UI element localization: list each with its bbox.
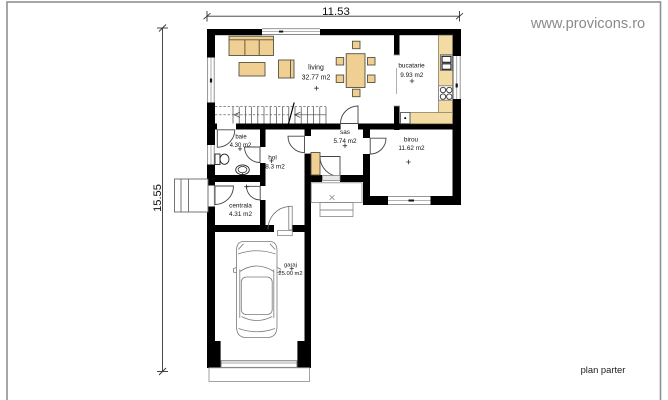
svg-text:baie: baie — [235, 135, 247, 141]
svg-text:4.31 m2: 4.31 m2 — [229, 211, 253, 218]
svg-text:sas: sas — [340, 129, 350, 136]
svg-text:4.30 m2: 4.30 m2 — [230, 143, 252, 149]
svg-text:centrala: centrala — [229, 203, 252, 210]
svg-text:11.53: 11.53 — [322, 6, 350, 18]
svg-text:www.provicons.ro: www.provicons.ro — [530, 16, 645, 32]
svg-text:garaj: garaj — [284, 263, 297, 269]
svg-text:hol: hol — [268, 154, 277, 161]
svg-text:32.77 m2: 32.77 m2 — [302, 75, 331, 82]
svg-text:birou: birou — [404, 136, 419, 143]
svg-text:plan parter: plan parter — [581, 364, 626, 375]
svg-text:8.3 m2: 8.3 m2 — [265, 163, 285, 170]
svg-text:15.55: 15.55 — [152, 184, 164, 212]
svg-text:9.93 m2: 9.93 m2 — [400, 72, 424, 79]
svg-text:11.62 m2: 11.62 m2 — [398, 145, 425, 152]
svg-text:bucatarie: bucatarie — [398, 62, 425, 69]
svg-text:25.00 m2: 25.00 m2 — [278, 271, 302, 277]
svg-text:living: living — [308, 65, 324, 72]
